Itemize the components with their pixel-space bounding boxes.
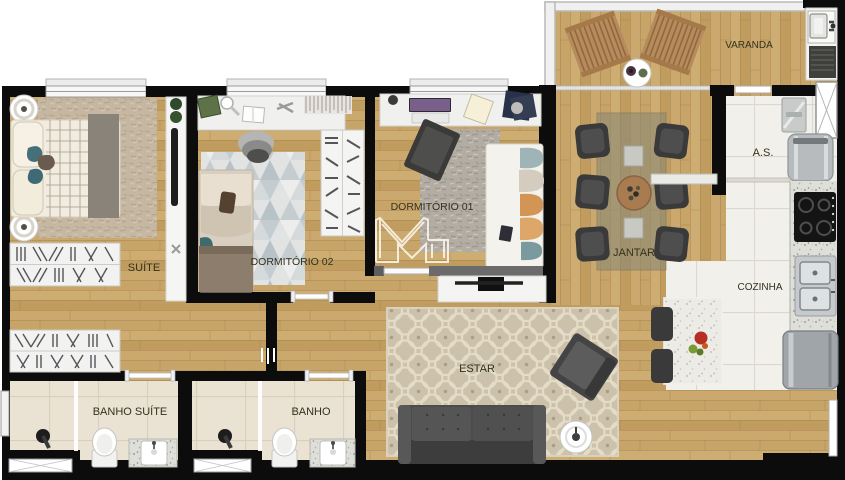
svg-text:DORMITÓRIO 01: DORMITÓRIO 01	[391, 200, 474, 213]
svg-text:A.S.: A.S.	[753, 147, 774, 159]
svg-text:ESTAR: ESTAR	[459, 363, 495, 375]
svg-text:COZINHA: COZINHA	[738, 282, 783, 293]
svg-text:JANTAR: JANTAR	[613, 247, 655, 259]
svg-text:BANHO SUÍTE: BANHO SUÍTE	[93, 405, 168, 418]
svg-text:DORMITÓRIO 02: DORMITÓRIO 02	[251, 255, 334, 268]
svg-text:SUÍTE: SUÍTE	[128, 261, 160, 274]
svg-text:BANHO: BANHO	[291, 406, 331, 418]
svg-text:VARANDA: VARANDA	[725, 40, 773, 51]
